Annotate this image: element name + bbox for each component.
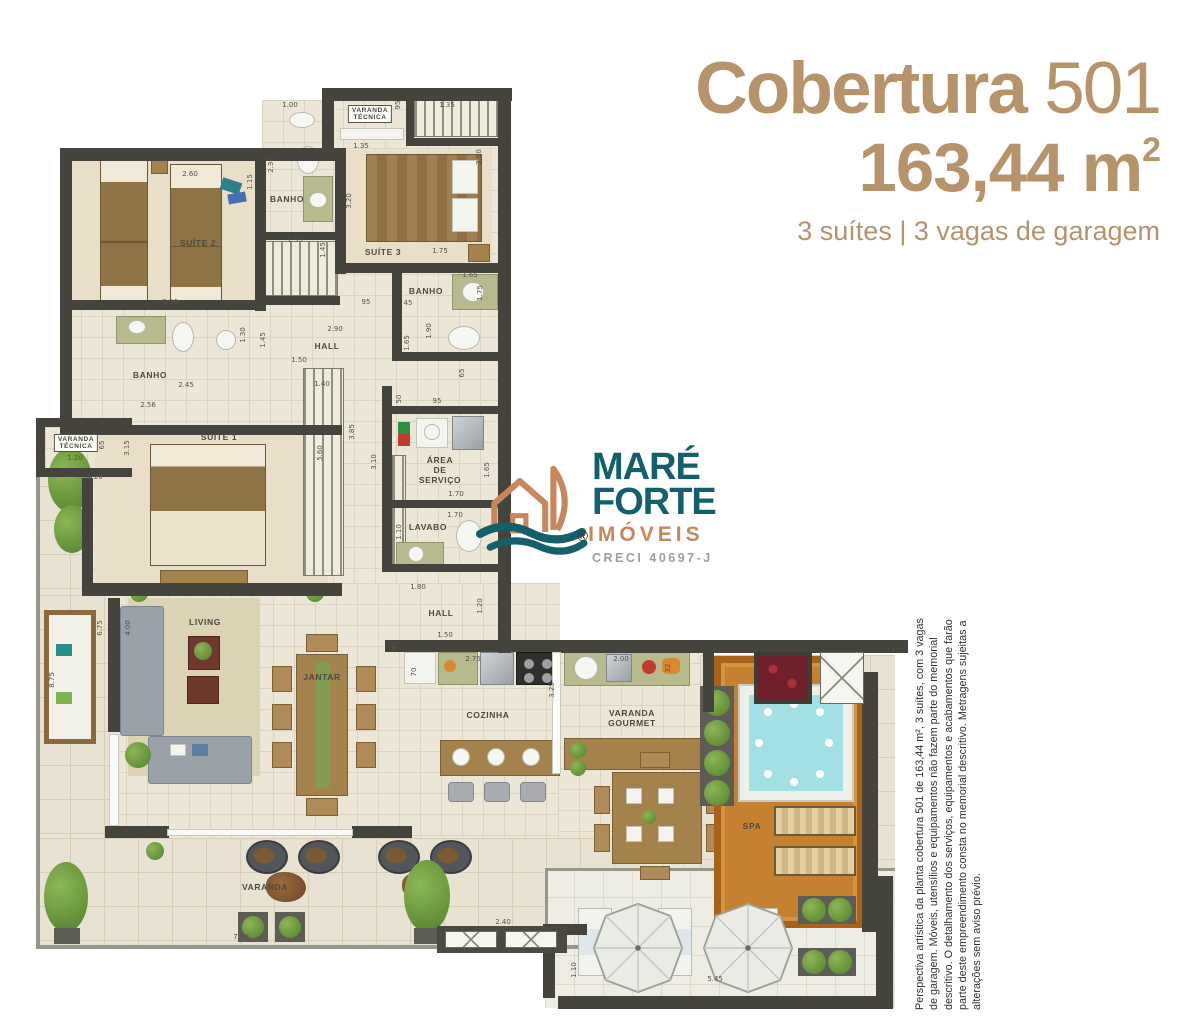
bar-stool	[520, 782, 546, 802]
dimension-label: 95	[394, 101, 402, 110]
dimension-label: 1.90	[425, 323, 433, 339]
room-label-suite-2: SUÍTE 2	[180, 238, 216, 248]
wall	[385, 640, 570, 652]
dimension-label: 1.20	[67, 454, 83, 462]
dimension-label: 1.80	[410, 583, 426, 591]
kitchen-sink	[480, 652, 514, 685]
wall	[260, 296, 340, 305]
service-sink	[452, 416, 484, 450]
shaft-icon	[820, 652, 864, 704]
spa-lounger	[774, 806, 856, 836]
sink-banho2	[289, 112, 315, 128]
brand-name-line3: ®IMÓVEIS	[592, 523, 716, 547]
sink2-banho1	[216, 330, 236, 350]
room-label-hall-lower: HALL	[428, 608, 453, 618]
dimension-label: 8.40	[320, 845, 336, 853]
room-label-banho-suite-3: BANHO	[409, 286, 443, 296]
wall	[406, 92, 414, 142]
door-kitchen-gourmet	[552, 652, 561, 774]
gourmet-centerpiece	[642, 810, 656, 824]
dining-chair	[356, 742, 376, 768]
dimension-label: 1.45	[319, 242, 327, 258]
wall	[60, 148, 335, 161]
dimension-label: 2.56	[140, 401, 156, 409]
planter-pane	[505, 931, 557, 948]
sliding-door-living	[167, 829, 353, 836]
dining-chair	[356, 704, 376, 730]
stool-suite3	[468, 244, 490, 262]
wall	[392, 352, 500, 361]
room-label-area-de-servico: ÁREA DE SERVIÇO	[419, 455, 461, 485]
dimension-label: 1.35	[439, 101, 455, 109]
room-label-suite-3: SUÍTE 3	[365, 247, 401, 257]
gourmet-bar	[564, 738, 712, 770]
wall	[382, 386, 392, 572]
registered-mark-icon: ®	[577, 528, 588, 545]
dimension-label: 1.20	[87, 473, 103, 481]
dimension-label: 1.15	[246, 174, 254, 190]
washer-door	[424, 424, 440, 440]
dimension-label: 2.30	[267, 157, 275, 173]
fridge	[404, 652, 436, 684]
gourmet-plant-1	[570, 742, 586, 758]
deck-plant	[802, 898, 826, 922]
brand-name-line1: MARÉ	[592, 450, 716, 485]
dimension-label: 65	[458, 369, 466, 378]
terrace-chair	[246, 840, 288, 874]
deck-plant	[828, 950, 852, 974]
spa-bush	[704, 720, 730, 746]
dimension-label: 3.20	[345, 193, 353, 209]
gourmet-decor-red	[642, 660, 656, 674]
terrace-parapet-left	[36, 477, 40, 948]
brand-logo: MARÉ FORTE ®IMÓVEIS CRECI 40697-J	[476, 450, 746, 565]
gourmet-chair	[594, 824, 610, 852]
room-label-jantar: JANTAR	[303, 672, 340, 682]
gourmet-plate	[658, 788, 674, 804]
gourmet-table	[612, 772, 702, 864]
deck-plant	[802, 950, 826, 974]
bench-pillow-green	[56, 692, 72, 704]
gourmet-plant-2	[570, 760, 586, 776]
toilet-banho1	[172, 322, 194, 352]
dimension-label: 1.30	[239, 327, 247, 343]
gourmet-pot	[574, 656, 598, 680]
room-label-spa: SPA	[743, 821, 762, 831]
umbrella-icon	[592, 902, 684, 994]
terrace-corner-plant-left	[44, 862, 88, 932]
room-label-varanda-tecnica-left: VARANDA TÉCNICA	[54, 434, 98, 452]
vanity-sink-banho1	[128, 320, 146, 334]
bar-plate	[522, 748, 540, 766]
wall	[392, 272, 402, 358]
dimension-label: 1.40	[314, 380, 330, 388]
bed-suite2-4	[170, 246, 222, 302]
dimension-label: 95	[433, 397, 442, 405]
dimension-label: 1.10	[570, 962, 578, 978]
dimension-label: 2.75	[465, 655, 481, 663]
room-label-lavabo: LAVABO	[409, 522, 447, 532]
sofa-pillow-1	[170, 744, 186, 756]
dimension-label: 1.70	[447, 511, 463, 519]
dimension-label: 1.50	[437, 631, 453, 639]
wall	[82, 478, 93, 590]
wall	[322, 88, 512, 101]
wall	[36, 468, 132, 477]
dimension-label: 1.75	[432, 247, 448, 255]
wall	[108, 598, 120, 732]
room-label-banho-suite-1: BANHO	[133, 370, 167, 380]
dimension-label: 6.75	[96, 620, 104, 636]
dining-chair	[272, 742, 292, 768]
dimension-label: 2.90	[327, 325, 343, 333]
wall	[36, 418, 132, 427]
vanity-sink-banho2	[309, 192, 327, 208]
room-label-varanda: VARANDA	[242, 882, 288, 892]
title-number: 501	[1044, 48, 1160, 129]
dimension-label: 85	[391, 642, 399, 651]
dimension-label: 5.45	[707, 975, 723, 983]
dimension-label: 50	[395, 395, 403, 404]
creci-number: CRECI 40697-J	[592, 551, 716, 565]
room-label-cozinha: COZINHA	[467, 710, 510, 720]
gourmet-plate	[626, 788, 642, 804]
wall	[60, 148, 72, 438]
door-terrace-left	[109, 734, 119, 826]
wall	[36, 418, 45, 477]
bar-plate	[487, 748, 505, 766]
wall	[105, 826, 169, 838]
wall	[392, 564, 500, 572]
wall	[406, 138, 500, 146]
bench-pillow-teal	[56, 644, 72, 656]
dimension-label: 2.60	[182, 170, 198, 178]
room-label-hall-upper: HALL	[314, 341, 339, 351]
deck-plant	[828, 898, 852, 922]
spa-lounger	[774, 846, 856, 876]
gourmet-chair	[640, 752, 670, 768]
dimension-label: 32	[664, 664, 672, 673]
bar-plate	[452, 748, 470, 766]
dimension-label: 1.65	[403, 335, 411, 351]
dimension-label: 1.65	[483, 462, 491, 478]
coffee-table-2	[187, 676, 219, 704]
wall	[392, 406, 500, 414]
page-title: Cobertura 501	[540, 52, 1160, 125]
wall	[322, 88, 334, 160]
terrace-corner-plant-right	[404, 860, 450, 932]
bed-suite1	[150, 444, 266, 566]
terrace-planter-2-plant	[279, 916, 301, 938]
toilet-banho3	[448, 326, 480, 350]
dimension-label: 2.50	[475, 149, 483, 165]
wall	[352, 826, 412, 838]
spa-jets	[764, 708, 772, 716]
dimension-label: 3.85	[348, 424, 356, 440]
dimension-label: 3.10	[370, 454, 378, 470]
room-label-living: LIVING	[189, 617, 221, 627]
area-exponent: 2	[1142, 131, 1160, 169]
dimension-label: 3.15	[123, 440, 131, 456]
wall	[60, 300, 260, 310]
room-label-varanda-tecnica-top: VARANDA TÉCNICA	[348, 105, 392, 123]
wall	[703, 642, 714, 712]
dimension-label: 65	[98, 441, 106, 450]
dimension-label: 1.35	[353, 142, 369, 150]
dimension-label: 70	[410, 668, 418, 677]
wardrobe-hall	[303, 368, 344, 576]
dimension-label: 2.00	[613, 655, 629, 663]
shelf-varanda-tecnica	[340, 128, 404, 140]
brand-imoveis: IMÓVEIS	[588, 523, 704, 546]
terrace-corner-pot-left	[54, 928, 80, 944]
dining-chair	[356, 666, 376, 692]
spa-bush	[704, 750, 730, 776]
service-decor	[398, 422, 410, 446]
dimension-label: 2.40	[495, 918, 511, 926]
nightstand-suite2	[151, 160, 168, 174]
wall	[876, 876, 893, 1008]
bed-suite2-3	[100, 242, 148, 302]
gourmet-plate	[658, 826, 674, 842]
dimension-label: 4.00	[124, 620, 132, 636]
brand-text: MARÉ FORTE ®IMÓVEIS CRECI 40697-J	[592, 450, 716, 565]
dimension-label: 5.60	[316, 445, 324, 461]
sofa-pillow-2	[192, 744, 208, 756]
area-value: 163,44 m2	[540, 133, 1160, 202]
dimension-label: 8.75	[48, 672, 56, 688]
dimension-label: 3.25	[548, 682, 556, 698]
vanity-sink-lavabo	[408, 546, 424, 562]
dimension-label: 1.10	[395, 524, 403, 540]
bed-suite2-1	[100, 160, 148, 242]
fruit-bowl	[444, 660, 456, 672]
flower-planter	[754, 652, 812, 704]
title-main: Cobertura	[695, 48, 1026, 129]
wall	[335, 148, 346, 274]
dimension-label: 1.65	[462, 271, 478, 279]
plant-coffee-table	[194, 642, 212, 660]
dimension-label: 45	[404, 299, 413, 307]
pillow-suite3-2	[452, 198, 478, 232]
disclaimer-text: Perspectiva artística da planta cobertur…	[913, 612, 985, 1010]
room-label-varanda-gourmet: VARANDA GOURMET	[608, 708, 656, 728]
subtitle: 3 suítes | 3 vagas de garagem	[540, 216, 1160, 247]
bar-stool	[448, 782, 474, 802]
pillow-suite3-1	[452, 160, 478, 194]
dimension-label: 95	[362, 298, 371, 306]
dimension-label: 1.50	[291, 356, 307, 364]
closet-suite3-top	[414, 97, 498, 137]
title-block: Cobertura 501 163,44 m2 3 suítes | 3 vag…	[540, 52, 1160, 247]
wall	[82, 583, 342, 596]
area-number: 163,44 m	[859, 129, 1143, 206]
dimension-label: 1.45	[259, 332, 267, 348]
dining-chair	[272, 704, 292, 730]
house-sail-waves-icon	[476, 450, 588, 562]
wall	[255, 148, 266, 311]
deck-edge-left	[545, 868, 548, 926]
dimension-label: 1.20	[476, 598, 484, 614]
dining-chair	[272, 666, 292, 692]
dimension-label: 1.00	[282, 101, 298, 109]
brand-name-line2: FORTE	[592, 485, 716, 520]
gourmet-chair	[640, 866, 670, 880]
dimension-label: 1.35	[287, 236, 303, 244]
terrace-small-plant	[146, 842, 164, 860]
spa-bush	[704, 780, 730, 806]
gourmet-chair	[594, 786, 610, 814]
dining-chair	[306, 798, 338, 816]
cooktop-burners	[524, 659, 534, 669]
dimension-label: 2.45	[178, 381, 194, 389]
wall	[558, 996, 893, 1009]
dimension-label: 1.75	[476, 285, 484, 301]
bar-stool	[484, 782, 510, 802]
flyer-canvas: BANHOVARANDA TÉCNICASUÍTE 2SUÍTE 3BANHOH…	[0, 0, 1200, 1016]
dimension-label: 7.20	[233, 933, 249, 941]
dimension-label: 3.96	[162, 298, 178, 306]
planter-pane	[445, 931, 497, 948]
room-label-banho-suite-2: BANHO	[270, 194, 304, 204]
dimension-label: 1.70	[448, 490, 464, 498]
plant-living	[125, 742, 151, 768]
room-label-suite-1: SUÍTE 1	[201, 432, 237, 442]
dining-chair	[306, 634, 338, 652]
gourmet-plate	[626, 826, 642, 842]
